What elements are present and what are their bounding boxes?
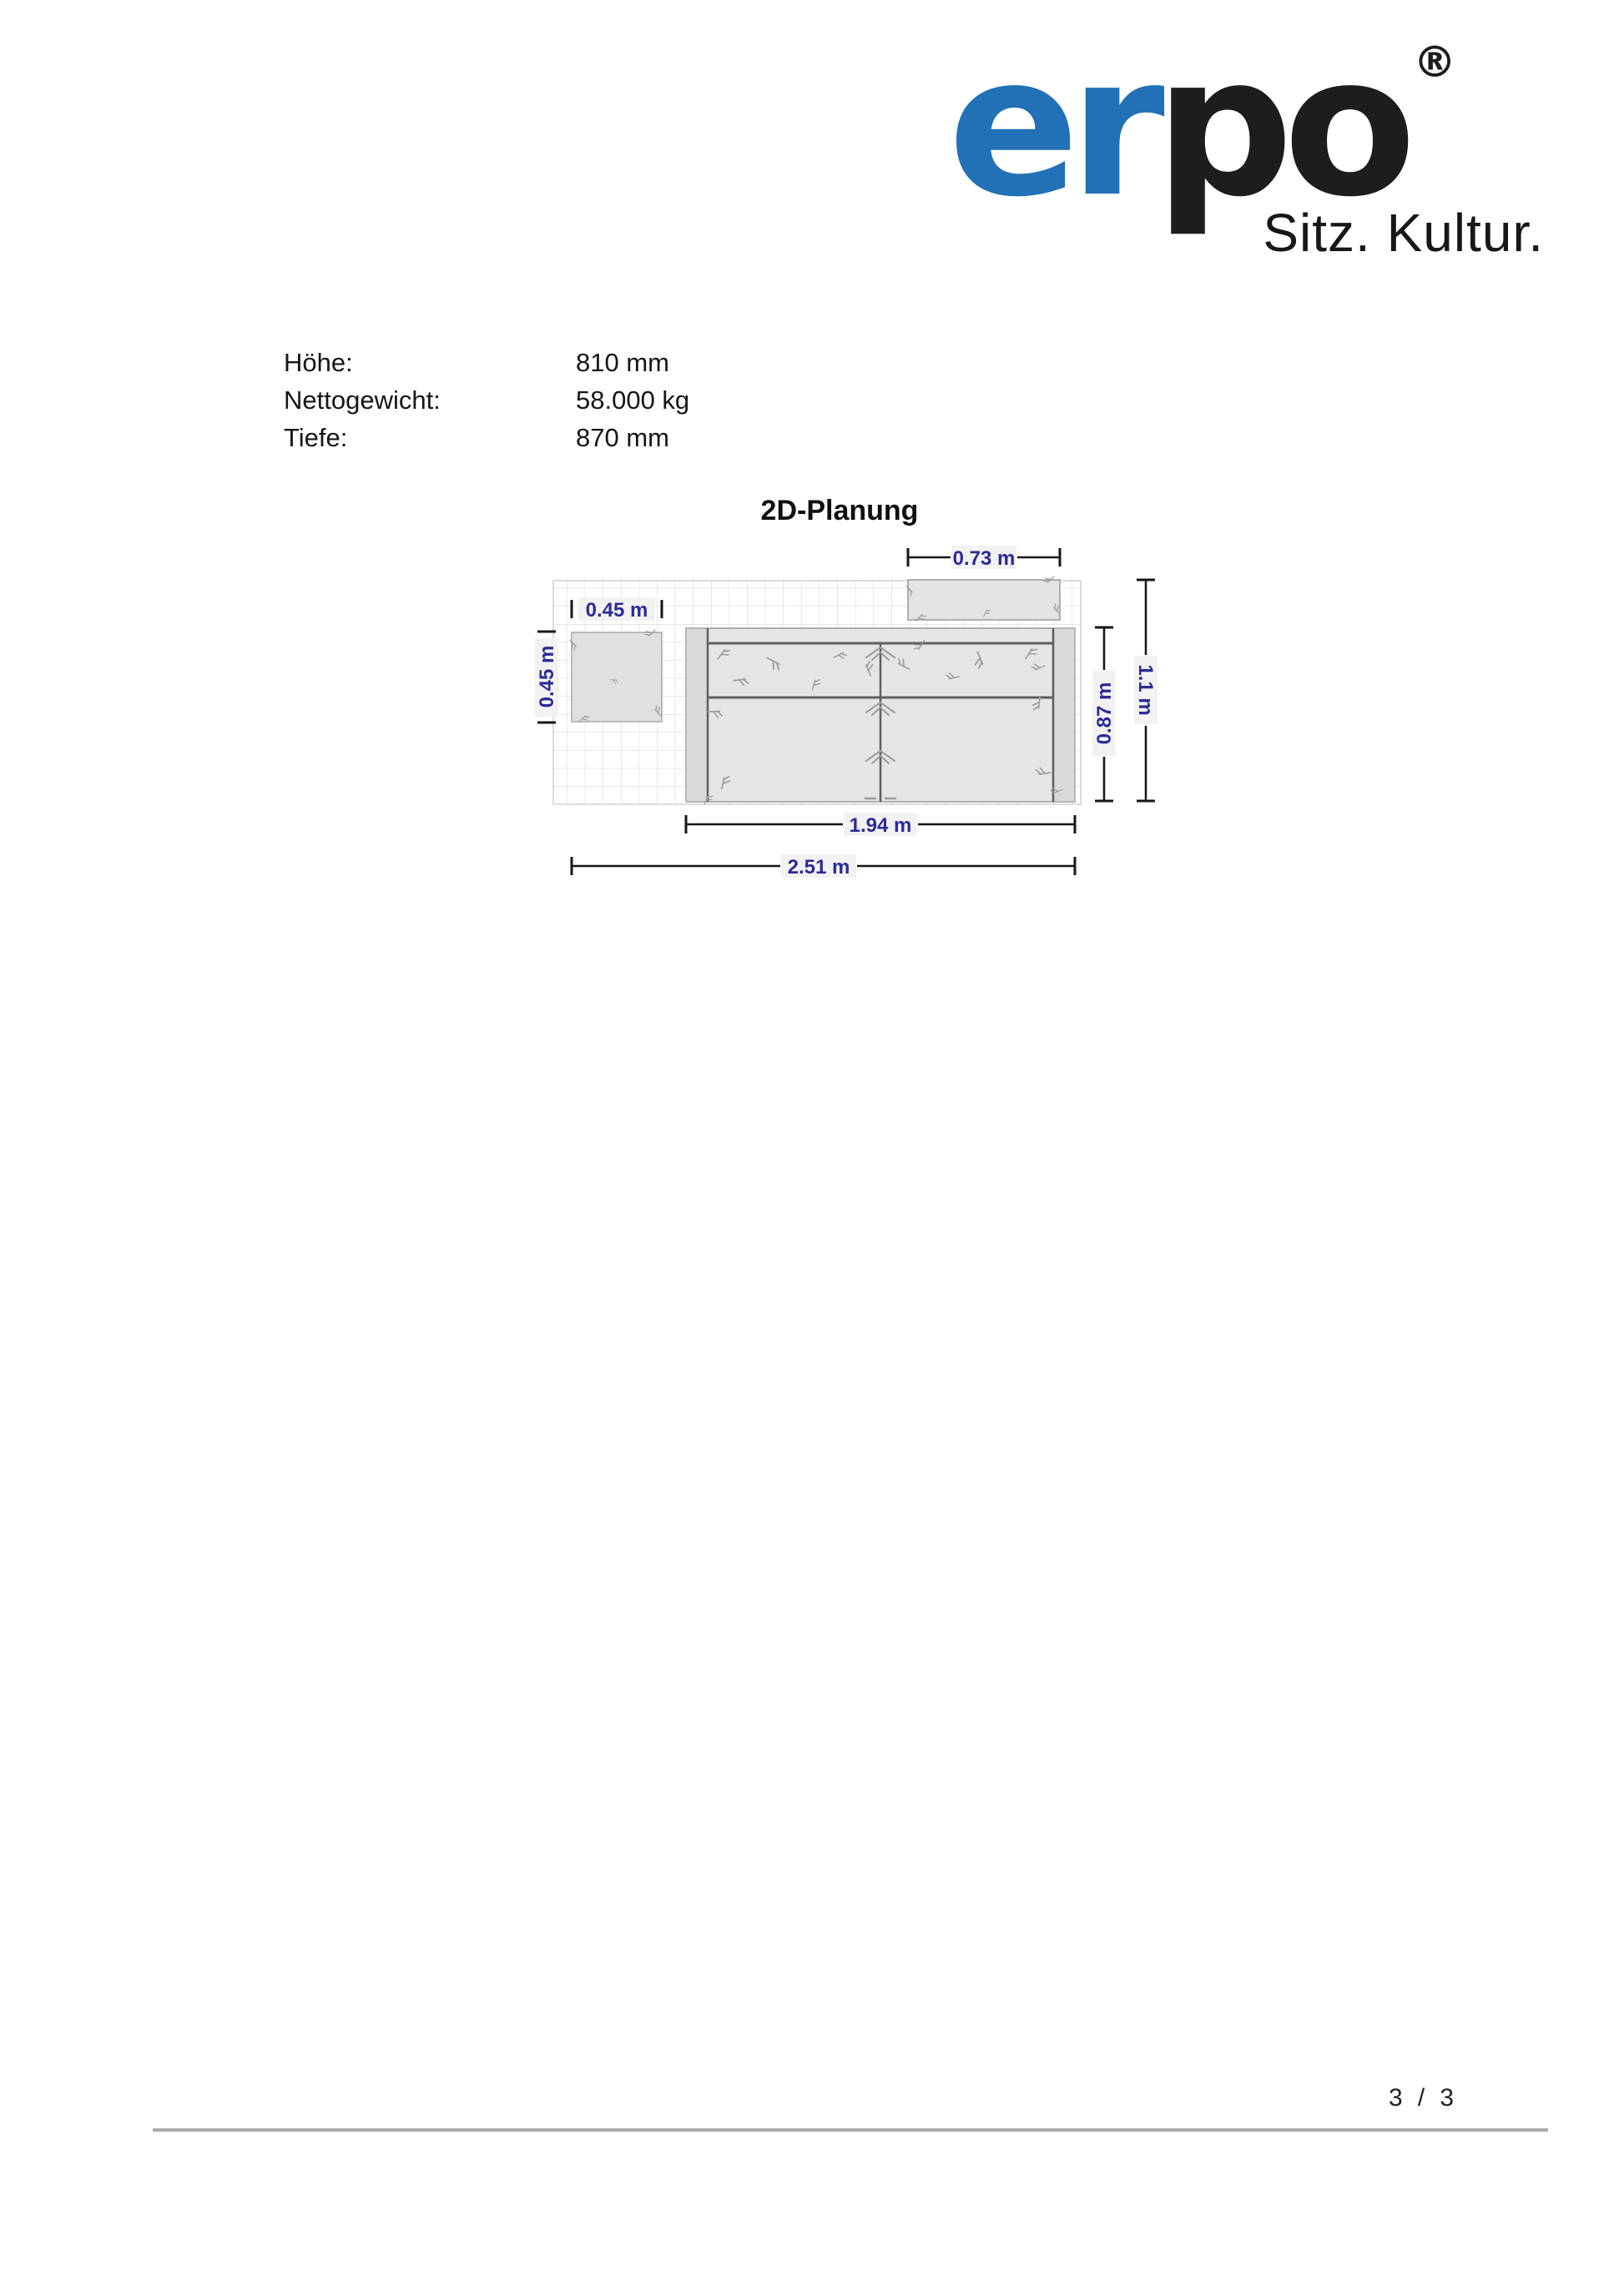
erpo-logo: erpo® Sitz. Kultur. (948, 30, 1544, 264)
dim-label-sofa-width: 1.94 m (850, 814, 912, 837)
dim-label-total-depth: 1.1 m (1134, 664, 1157, 715)
registered-trademark-icon: ® (1413, 38, 1456, 88)
dim-label-stool-width: 0.45 m (586, 599, 648, 622)
dim-label-sofa-depth: 0.87 m (1093, 682, 1116, 745)
dimension-sideboard-width: 0.73 m (908, 546, 1060, 570)
dimension-stool-width: 0.45 m (572, 597, 662, 622)
spec-label: Nettogewicht: (284, 385, 576, 415)
dimension-total-width: 2.51 m (572, 854, 1075, 879)
sideboard-item (906, 577, 1060, 621)
spec-row-hoehe: Höhe: 810 mm (284, 344, 689, 381)
footer-divider (153, 2128, 1548, 2132)
plan-title: 2D-Planung (531, 495, 1148, 527)
dimension-sofa-width: 1.94 m (686, 813, 1075, 837)
product-specs-table: Höhe: 810 mm Nettogewicht: 58.000 kg Tie… (284, 344, 689, 456)
spec-value: 870 mm (576, 423, 669, 453)
sofa-left-arm (686, 628, 708, 802)
dim-label-stool-depth: 0.45 m (536, 646, 558, 708)
dim-label-total-width: 2.51 m (788, 856, 850, 879)
spec-value: 810 mm (576, 348, 669, 378)
page-total: 3 (1440, 2084, 1454, 2112)
sofa-right-arm (1053, 628, 1075, 802)
dimension-total-depth: 1.1 m (1134, 580, 1157, 801)
spec-label: Höhe: (284, 348, 576, 378)
spec-row-nettogewicht: Nettogewicht: 58.000 kg (284, 381, 689, 419)
dimension-sofa-depth: 0.87 m (1092, 627, 1116, 801)
dim-label-sideboard-width: 0.73 m (953, 547, 1016, 570)
spec-value: 58.000 kg (576, 385, 689, 415)
stool-item (570, 630, 662, 722)
page-current: 3 (1389, 2084, 1403, 2112)
dimension-stool-depth: 0.45 m (535, 632, 558, 723)
page-separator: / (1418, 2084, 1425, 2112)
spec-row-tiefe: Tiefe: 870 mm (284, 419, 689, 456)
page-number: 3 / 3 (1389, 2084, 1454, 2112)
logo-wordmark: erpo® (948, 30, 1544, 224)
sofa-item (686, 628, 1075, 803)
2d-plan-diagram: 0.73 m 0.45 m 0.45 m 0.87 m 1.1 m 1.94 m (531, 534, 1165, 884)
spec-label: Tiefe: (284, 423, 576, 453)
logo-text-er: er (948, 14, 1155, 239)
document-page: { "logo": { "brand_primary": "er", "bran… (0, 0, 1624, 2296)
